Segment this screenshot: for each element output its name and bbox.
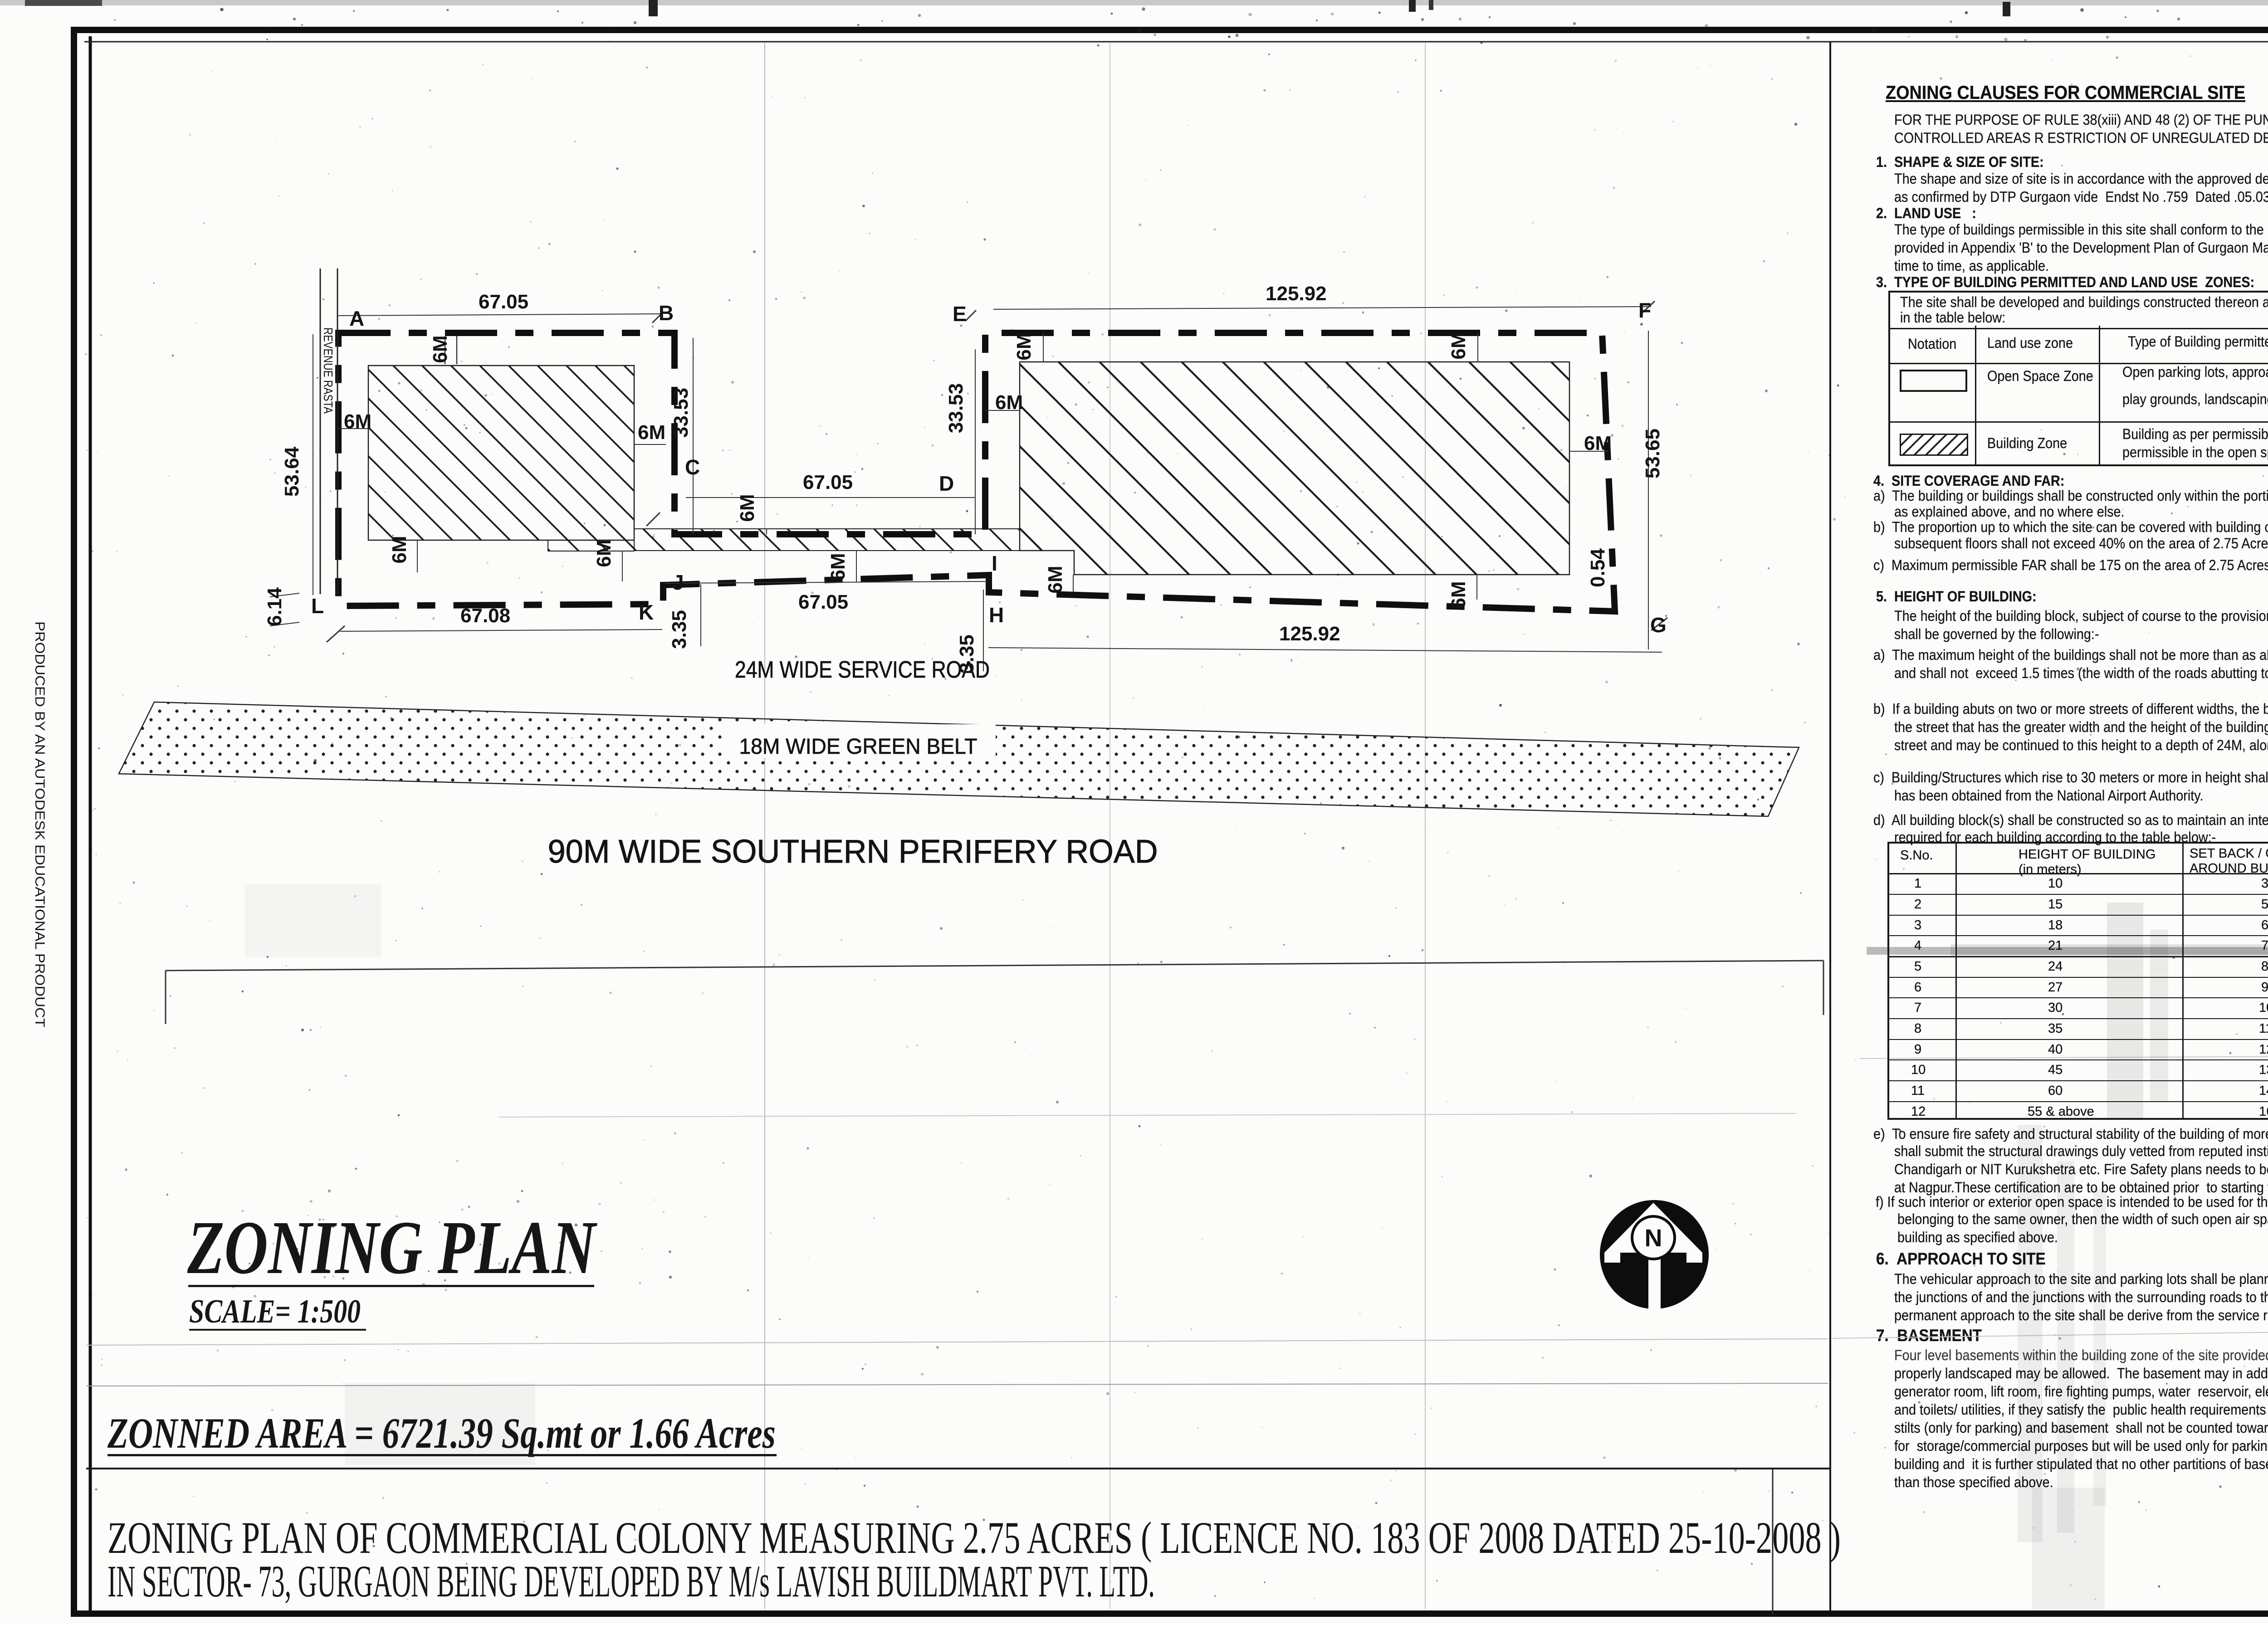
svg-text:SCALE= 1:500: SCALE= 1:500 (189, 1293, 361, 1330)
svg-text:IN SECTOR- 73, GURGAON BEING D: IN SECTOR- 73, GURGAON BEING DEVELOPED B… (108, 1556, 1155, 1606)
svg-text:ZONNED AREA = 6721.39 Sq.mt or: ZONNED AREA = 6721.39 Sq.mt or 1.66 Acre… (107, 1409, 776, 1457)
svg-text:ZONING PLAN: ZONING PLAN (187, 1205, 597, 1290)
svg-text:ZONING PLAN OF COMMERCIAL COLO: ZONING PLAN OF COMMERCIAL COLONY MEASURI… (108, 1513, 1841, 1563)
